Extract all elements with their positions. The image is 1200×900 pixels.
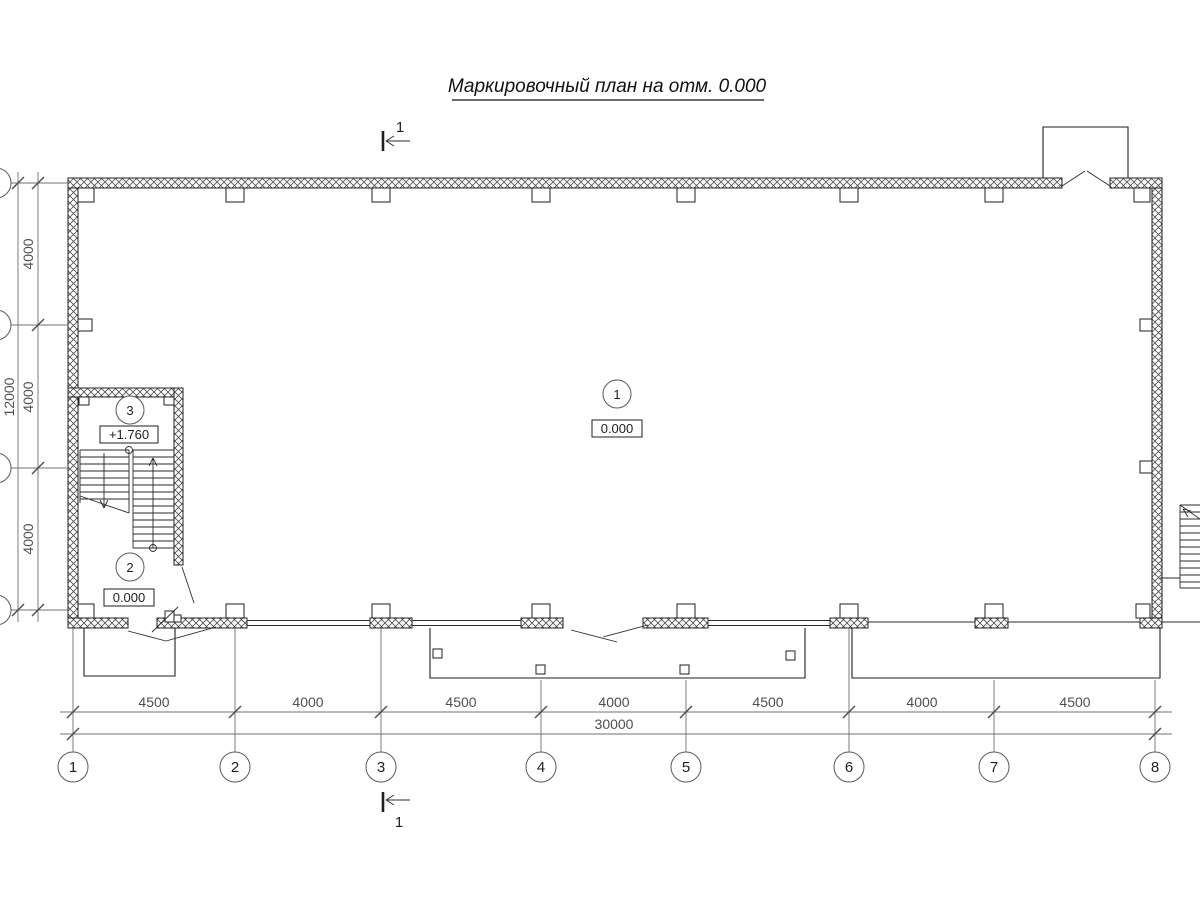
porch-right xyxy=(852,628,1160,678)
porch-left xyxy=(84,628,175,676)
section-mark-top: 1 xyxy=(383,119,410,151)
vestibule-door-leaves xyxy=(1062,171,1110,186)
floor-plan-canvas: Маркировочный план на отм. 0.000 1 1 xyxy=(0,0,1200,900)
dim-row-1: 4000 xyxy=(20,238,36,269)
door-middle-entrance xyxy=(571,625,648,642)
grid-label-4: 4 xyxy=(537,759,545,776)
dim-row-3: 4000 xyxy=(20,523,36,554)
grid-label-1: 1 xyxy=(69,759,77,776)
dim-col-2: 4000 xyxy=(292,694,323,710)
level-value-2: 0.000 xyxy=(113,590,146,605)
grid-label-8: 8 xyxy=(1151,759,1159,776)
room-marker-2: 2 0.000 xyxy=(104,553,154,606)
stair-arrow-up xyxy=(149,458,157,548)
level-value-1: 0.000 xyxy=(601,421,634,436)
exterior-stair-right xyxy=(1160,505,1200,588)
grid-label-6: 6 xyxy=(845,759,853,776)
left-dimension-system: 4000 4000 4000 12000 xyxy=(0,168,68,625)
dim-col-1: 4500 xyxy=(138,694,169,710)
room-number-2: 2 xyxy=(126,560,133,575)
grid-label-5: 5 xyxy=(682,759,690,776)
room-marker-1: 1 0.000 xyxy=(592,380,642,437)
bottom-dimension-system: 4500 4000 4500 4000 4500 4000 4500 30000… xyxy=(58,628,1172,782)
entrance-vestibule xyxy=(1043,127,1128,186)
section-label-top: 1 xyxy=(396,119,404,136)
dim-row-total: 12000 xyxy=(1,377,17,416)
room-number-3: 3 xyxy=(126,403,133,418)
dim-col-4: 4000 xyxy=(598,694,629,710)
drawing-title: Маркировочный план на отм. 0.000 xyxy=(448,76,767,97)
dim-col-5: 4500 xyxy=(752,694,783,710)
section-label-bottom: 1 xyxy=(395,814,403,831)
dim-col-3: 4500 xyxy=(445,694,476,710)
dim-col-6: 4000 xyxy=(906,694,937,710)
grid-label-2: 2 xyxy=(231,759,239,776)
porch-middle xyxy=(430,628,805,678)
dim-row-2: 4000 xyxy=(20,381,36,412)
grid-bubbles: 1 2 3 4 5 6 7 8 xyxy=(58,752,1170,782)
dim-col-7: 4500 xyxy=(1059,694,1090,710)
dim-total: 30000 xyxy=(595,716,634,732)
drawing-sheet: Маркировочный план на отм. 0.000 1 1 xyxy=(0,0,1200,900)
grid-label-7: 7 xyxy=(990,759,998,776)
section-mark-bottom: 1 xyxy=(383,792,410,831)
grid-label-3: 3 xyxy=(377,759,385,776)
level-value-3: +1.760 xyxy=(109,427,149,442)
room-number-1: 1 xyxy=(613,387,620,402)
stair-arrow-down xyxy=(100,453,108,508)
interior-stair xyxy=(80,447,174,552)
room-marker-3: 3 +1.760 xyxy=(100,396,158,443)
